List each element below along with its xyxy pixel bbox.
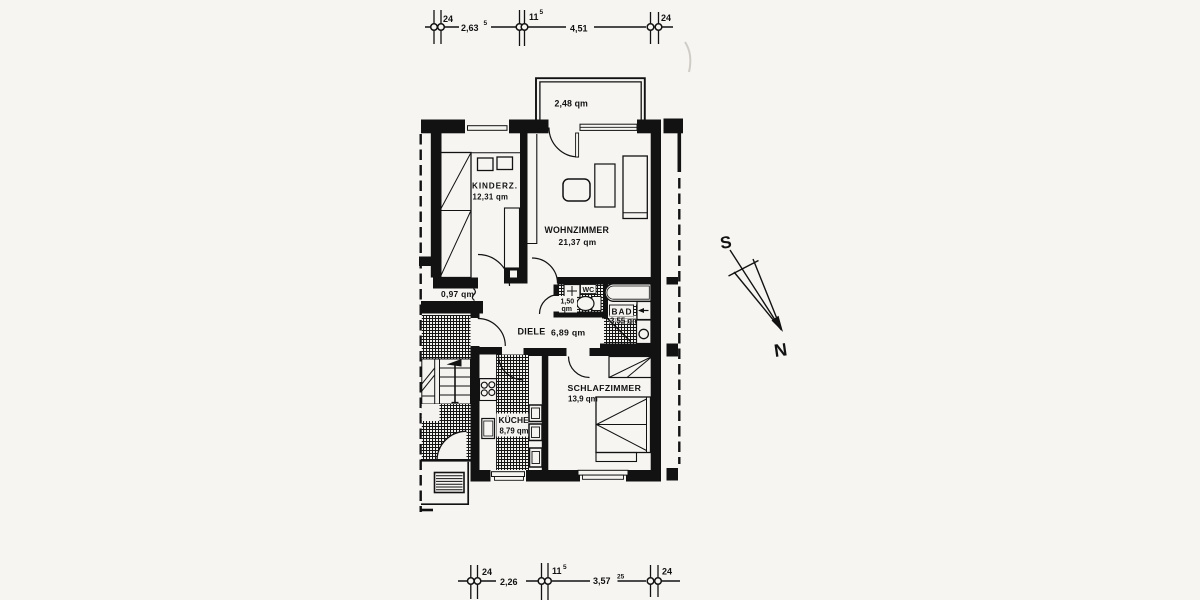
- svg-text:3,55 qm: 3,55 qm: [610, 317, 639, 326]
- svg-text:4,51: 4,51: [570, 24, 588, 34]
- svg-text:5: 5: [563, 564, 567, 571]
- svg-text:qm: qm: [562, 306, 573, 313]
- svg-text:21,37 qm: 21,37 qm: [559, 237, 597, 247]
- svg-text:2,48 qm: 2,48 qm: [555, 99, 589, 109]
- svg-text:KINDERZ.: KINDERZ.: [472, 182, 518, 191]
- svg-text:12,31 qm: 12,31 qm: [473, 193, 509, 202]
- svg-text:WOHNZIMMER: WOHNZIMMER: [545, 225, 610, 235]
- svg-text:24: 24: [662, 567, 672, 577]
- svg-text:3,57: 3,57: [593, 576, 611, 586]
- svg-text:N: N: [773, 339, 789, 361]
- svg-text:BAD: BAD: [612, 307, 633, 317]
- svg-text:WC: WC: [583, 287, 595, 294]
- svg-text:11: 11: [552, 566, 562, 576]
- svg-text:24: 24: [482, 567, 492, 577]
- svg-text:25: 25: [617, 574, 625, 581]
- svg-text:2,26: 2,26: [500, 577, 518, 587]
- svg-text:SCHLAFZIMMER: SCHLAFZIMMER: [568, 383, 642, 393]
- svg-text:8,79 qm: 8,79 qm: [500, 427, 529, 436]
- svg-text:0,97 qm: 0,97 qm: [441, 289, 474, 299]
- svg-text:11: 11: [529, 12, 539, 22]
- svg-text:KÜCHE: KÜCHE: [499, 415, 530, 425]
- svg-text:24: 24: [443, 14, 453, 24]
- svg-text:6,89 qm: 6,89 qm: [551, 328, 585, 338]
- svg-text:1,50: 1,50: [561, 299, 575, 306]
- svg-text:DIELE: DIELE: [518, 327, 546, 337]
- svg-text:2,63: 2,63: [461, 23, 479, 33]
- svg-text:24: 24: [661, 13, 671, 23]
- svg-text:5: 5: [484, 20, 488, 27]
- svg-text:13,9 qm: 13,9 qm: [568, 395, 598, 404]
- svg-text:5: 5: [540, 9, 544, 16]
